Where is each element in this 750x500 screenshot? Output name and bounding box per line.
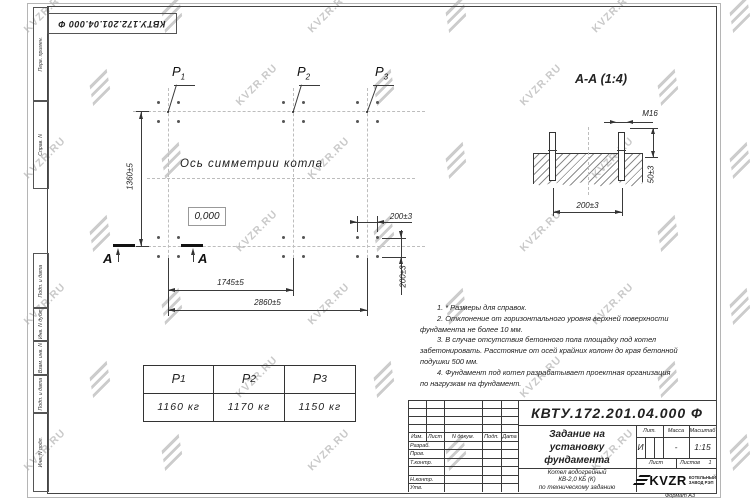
titleblock-row-utv: Утв. <box>410 485 423 491</box>
dimension-value-span-outer: 2860±5 <box>168 298 367 307</box>
loads-table-value-p3: 1150 кг <box>285 394 355 422</box>
company-logo: KVZR КОТЕЛЬНЫЙ ЗАВОД РЭП <box>636 468 716 492</box>
titleblock-col-data: Дата <box>501 434 518 440</box>
elevation-value: 0,000 <box>194 211 219 222</box>
dimension-value-protrusion: 50±3 <box>647 157 656 193</box>
margin-cell-podp-data-1: Подп. и дата <box>33 253 49 309</box>
anchor-bolt-dot <box>157 120 160 123</box>
section-cut-letter-right: А <box>198 251 207 266</box>
anchor-bolt-dot <box>177 255 180 258</box>
dimension-arrow <box>168 288 175 292</box>
elevation-mark: 0,000 <box>188 207 226 226</box>
drawing-subtitle-line: по техническому заданию <box>539 484 615 492</box>
anchor-bolt-dot <box>282 120 285 123</box>
note-line: 2. Отклонение от горизонтального уровня … <box>420 314 720 325</box>
load-label-p2: P2 <box>297 64 310 82</box>
anchor-bolt-dot <box>302 255 305 258</box>
margin-label: Справ. N <box>38 134 44 156</box>
drawing-title-line: фундамента <box>544 454 609 467</box>
dimension-arrow <box>651 128 655 134</box>
thread-arrow <box>610 120 616 124</box>
centerline-top-row <box>133 111 425 112</box>
boiler-axis-label: Ось симметрии котла <box>180 158 323 170</box>
titleblock-row-nkontr: Н.контр. <box>410 477 433 483</box>
titleblock-line <box>408 400 409 492</box>
load-name: P <box>313 372 321 386</box>
extension-line <box>382 238 406 239</box>
centerline-column-1 <box>168 88 169 268</box>
bolt-surface-tick <box>617 150 626 151</box>
section-cut-line-left <box>113 244 135 247</box>
anchor-bolt-dot <box>376 120 379 123</box>
thread-label: M16 <box>638 109 662 118</box>
load-name: P <box>297 64 306 79</box>
sheet-label: Лист <box>636 460 676 466</box>
leader-shelf-p2 <box>299 85 320 86</box>
titleblock-col-podp: Подп. <box>482 434 501 440</box>
anchor-bolt-dot <box>177 101 180 104</box>
titleblock-line <box>482 400 483 492</box>
drawing-subtitle-line: Котел водогрейный <box>548 469 607 477</box>
note-line: 3. В случае отсутствия бетонного пола пл… <box>420 335 720 346</box>
titleblock-col-ndokum: N докум. <box>444 434 482 440</box>
margin-cell-podp-data-2: Подп. и дата <box>33 374 49 414</box>
dimension-arrow <box>139 239 143 246</box>
anchor-bolt-dot <box>282 255 285 258</box>
bolt-surface-tick <box>548 150 557 151</box>
extension-line <box>293 258 294 296</box>
dimension-arrow <box>168 308 175 312</box>
drawing-subtitle-line: КВ-2,0 КБ (К) <box>558 476 595 484</box>
load-sub: 3 <box>321 374 327 385</box>
foundation-left-edge <box>533 153 534 184</box>
leader-shelf-p1 <box>174 85 195 86</box>
dimension-arrow <box>350 220 357 224</box>
drawing-subtitle: Котел водогрейный КВ-2,0 КБ (К) по техни… <box>518 468 636 492</box>
load-sub: 2 <box>250 374 256 385</box>
scale-label: Масштаб <box>689 428 716 434</box>
margin-label: Подп. и дата <box>38 378 44 410</box>
mass-label: Масса <box>663 428 689 434</box>
anchor-bolt-dot <box>157 101 160 104</box>
dimension-arrow <box>377 220 384 224</box>
note-line: забетонировать. Расстояние от осей крайн… <box>420 346 720 357</box>
centerline-column-3 <box>367 88 368 268</box>
margin-cell-sprav-n: Справ. N <box>33 100 49 189</box>
load-label-p1: P1 <box>172 64 185 82</box>
note-line: подушки 500 мм. <box>420 357 720 368</box>
margin-label: Инв. N дубл. <box>38 309 44 339</box>
load-sub: 1 <box>180 374 186 385</box>
dimension-arrow <box>553 210 560 214</box>
load-sub: 1 <box>181 73 185 82</box>
titleblock-col-list: Лист <box>426 434 444 440</box>
loads-table-header-p1: P1 <box>144 366 214 394</box>
anchor-bolt-dot <box>177 236 180 239</box>
anchor-bolt-dot <box>177 120 180 123</box>
anchor-bolt-left <box>549 132 556 181</box>
loads-table-header-p3: P3 <box>285 366 355 394</box>
thread-arrow <box>627 120 633 124</box>
titleblock-line <box>645 437 646 458</box>
note-line: 1. * Размеры для справок. <box>420 303 720 314</box>
drawing-title: Задание на установку фундамента <box>518 426 636 468</box>
extension-line <box>367 258 368 316</box>
drawing-sheet: KVZR.RUKVZR.RUKVZR.RUKVZR.RUKVZR.RUKVZR.… <box>0 0 750 500</box>
centerline-column-2 <box>293 88 294 268</box>
loads-table-value-p2: 1170 кг <box>214 394 284 422</box>
titleblock-line <box>654 437 655 458</box>
extension-line <box>377 216 378 232</box>
dimension-value-bolt-x: 200±3 <box>384 212 418 221</box>
sheets-label: Листов <box>676 460 704 466</box>
titleblock-row-razrab: Разраб. <box>410 443 430 449</box>
load-name: P <box>172 372 180 386</box>
extension-line <box>622 188 623 216</box>
extension-line <box>136 246 149 247</box>
dimension-line-section-spacing <box>553 212 622 213</box>
scale-value: 1:15 <box>689 442 716 452</box>
load-label-p3: P3 <box>375 64 388 82</box>
kvzr-logo-caption: КОТЕЛЬНЫЙ ЗАВОД РЭП <box>689 475 716 485</box>
note-line: 4. Фундамент под котел разрабатывает про… <box>420 368 720 379</box>
titleblock-line <box>636 437 716 438</box>
anchor-bolt-dot <box>356 120 359 123</box>
dimension-arrow <box>139 112 143 119</box>
sheets-value: 1 <box>704 460 716 466</box>
titleblock-row-tkontr: Т.контр. <box>410 460 432 466</box>
drawing-title-line: установку <box>550 441 605 454</box>
top-stamp-box: КВТУ.172.201.04.000 Ф <box>47 13 177 34</box>
titleblock-line <box>501 400 502 492</box>
margin-cell-inv-dubl: Инв. N дубл. <box>33 307 49 342</box>
foundation-right-edge <box>642 153 643 182</box>
margin-label: Подп. и дата <box>38 265 44 297</box>
section-cut-arrow-stem <box>193 254 194 262</box>
section-title: А-А (1:4) <box>555 72 647 86</box>
margin-cell-inv-podl: Инв. N подл. <box>33 412 49 492</box>
section-cut-arrow-stem <box>118 254 119 262</box>
dimension-line-span-inner <box>168 290 293 291</box>
drawing-layer: Перв. примен. Справ. N Подп. и дата Инв.… <box>0 0 750 500</box>
anchor-bolt-dot <box>376 101 379 104</box>
anchor-bolt-right <box>618 132 625 181</box>
note-line: по нагрузкам на фундамент. <box>420 379 720 390</box>
margin-label: Инв. N подл. <box>38 437 44 467</box>
load-name: P <box>375 64 384 79</box>
load-sub: 3 <box>384 73 388 82</box>
lit-value: И <box>636 442 645 452</box>
top-stamp-code: КВТУ.172.201.04.000 Ф <box>58 19 165 29</box>
dimension-value-bolt-y: 200±3 <box>399 257 408 297</box>
loads-table-value-p1: 1160 кг <box>144 394 214 422</box>
mass-value: - <box>663 442 689 452</box>
anchor-bolt-dot <box>356 255 359 258</box>
dimension-arrow <box>286 288 293 292</box>
anchor-bolt-dot <box>282 236 285 239</box>
section-centerline <box>588 127 589 195</box>
dimension-arrow <box>615 210 622 214</box>
dimension-line-height <box>141 112 142 246</box>
dimension-value-height: 1360±5 <box>126 157 135 197</box>
section-cut-letter-left: А <box>103 251 112 266</box>
anchor-bolt-dot <box>376 236 379 239</box>
load-name: P <box>172 64 181 79</box>
section-cut-line-right <box>181 244 203 247</box>
dimension-line-span-outer <box>168 310 367 311</box>
anchor-bolt-dot <box>356 236 359 239</box>
anchor-bolt-dot <box>157 255 160 258</box>
titleblock-row-prov: Пров. <box>410 451 425 457</box>
anchor-bolt-dot <box>302 120 305 123</box>
document-number: КВТУ.172.201.04.000 Ф <box>518 400 716 425</box>
titleblock-col-izm: Изм. <box>408 434 426 440</box>
drawing-title-line: Задание на <box>549 428 605 441</box>
dimension-value-section-spacing: 200±3 <box>553 201 622 210</box>
anchor-bolt-dot <box>282 101 285 104</box>
dimension-arrow <box>360 308 367 312</box>
margin-cell-vzam-inv: Взам. инв. N <box>33 340 49 376</box>
dimension-value-span-inner: 1745±5 <box>168 278 293 287</box>
margin-label: Перв. примен. <box>38 37 44 71</box>
lit-label: Лит. <box>636 428 663 434</box>
kvzr-logo-text: KVZR <box>649 473 686 488</box>
anchor-bolt-dot <box>157 236 160 239</box>
logo-caption-line: ЗАВОД РЭП <box>689 480 716 485</box>
anchor-bolt-dot <box>376 255 379 258</box>
loads-table-header-p2: P2 <box>214 366 284 394</box>
load-name: P <box>242 372 250 386</box>
titleblock-line <box>444 400 445 492</box>
anchor-bolt-dot <box>356 101 359 104</box>
centerline-bottom-row <box>133 246 425 247</box>
extension-line <box>357 216 358 232</box>
format-label: Формат А3 <box>640 493 720 499</box>
anchor-bolt-dot <box>302 236 305 239</box>
loads-table: P1 P2 P3 1160 кг 1170 кг 1150 кг <box>143 365 356 422</box>
anchor-bolt-dot <box>302 101 305 104</box>
leader-shelf-p3 <box>373 85 394 86</box>
margin-label: Взам. инв. N <box>38 343 44 373</box>
load-sub: 2 <box>306 73 310 82</box>
note-line: фундамента не более 10 мм. <box>420 325 720 336</box>
dimension-arrow <box>399 231 403 238</box>
technical-notes: 1. * Размеры для справок. 2. Отклонение … <box>420 303 720 389</box>
centerline-boiler-axis <box>147 178 415 179</box>
